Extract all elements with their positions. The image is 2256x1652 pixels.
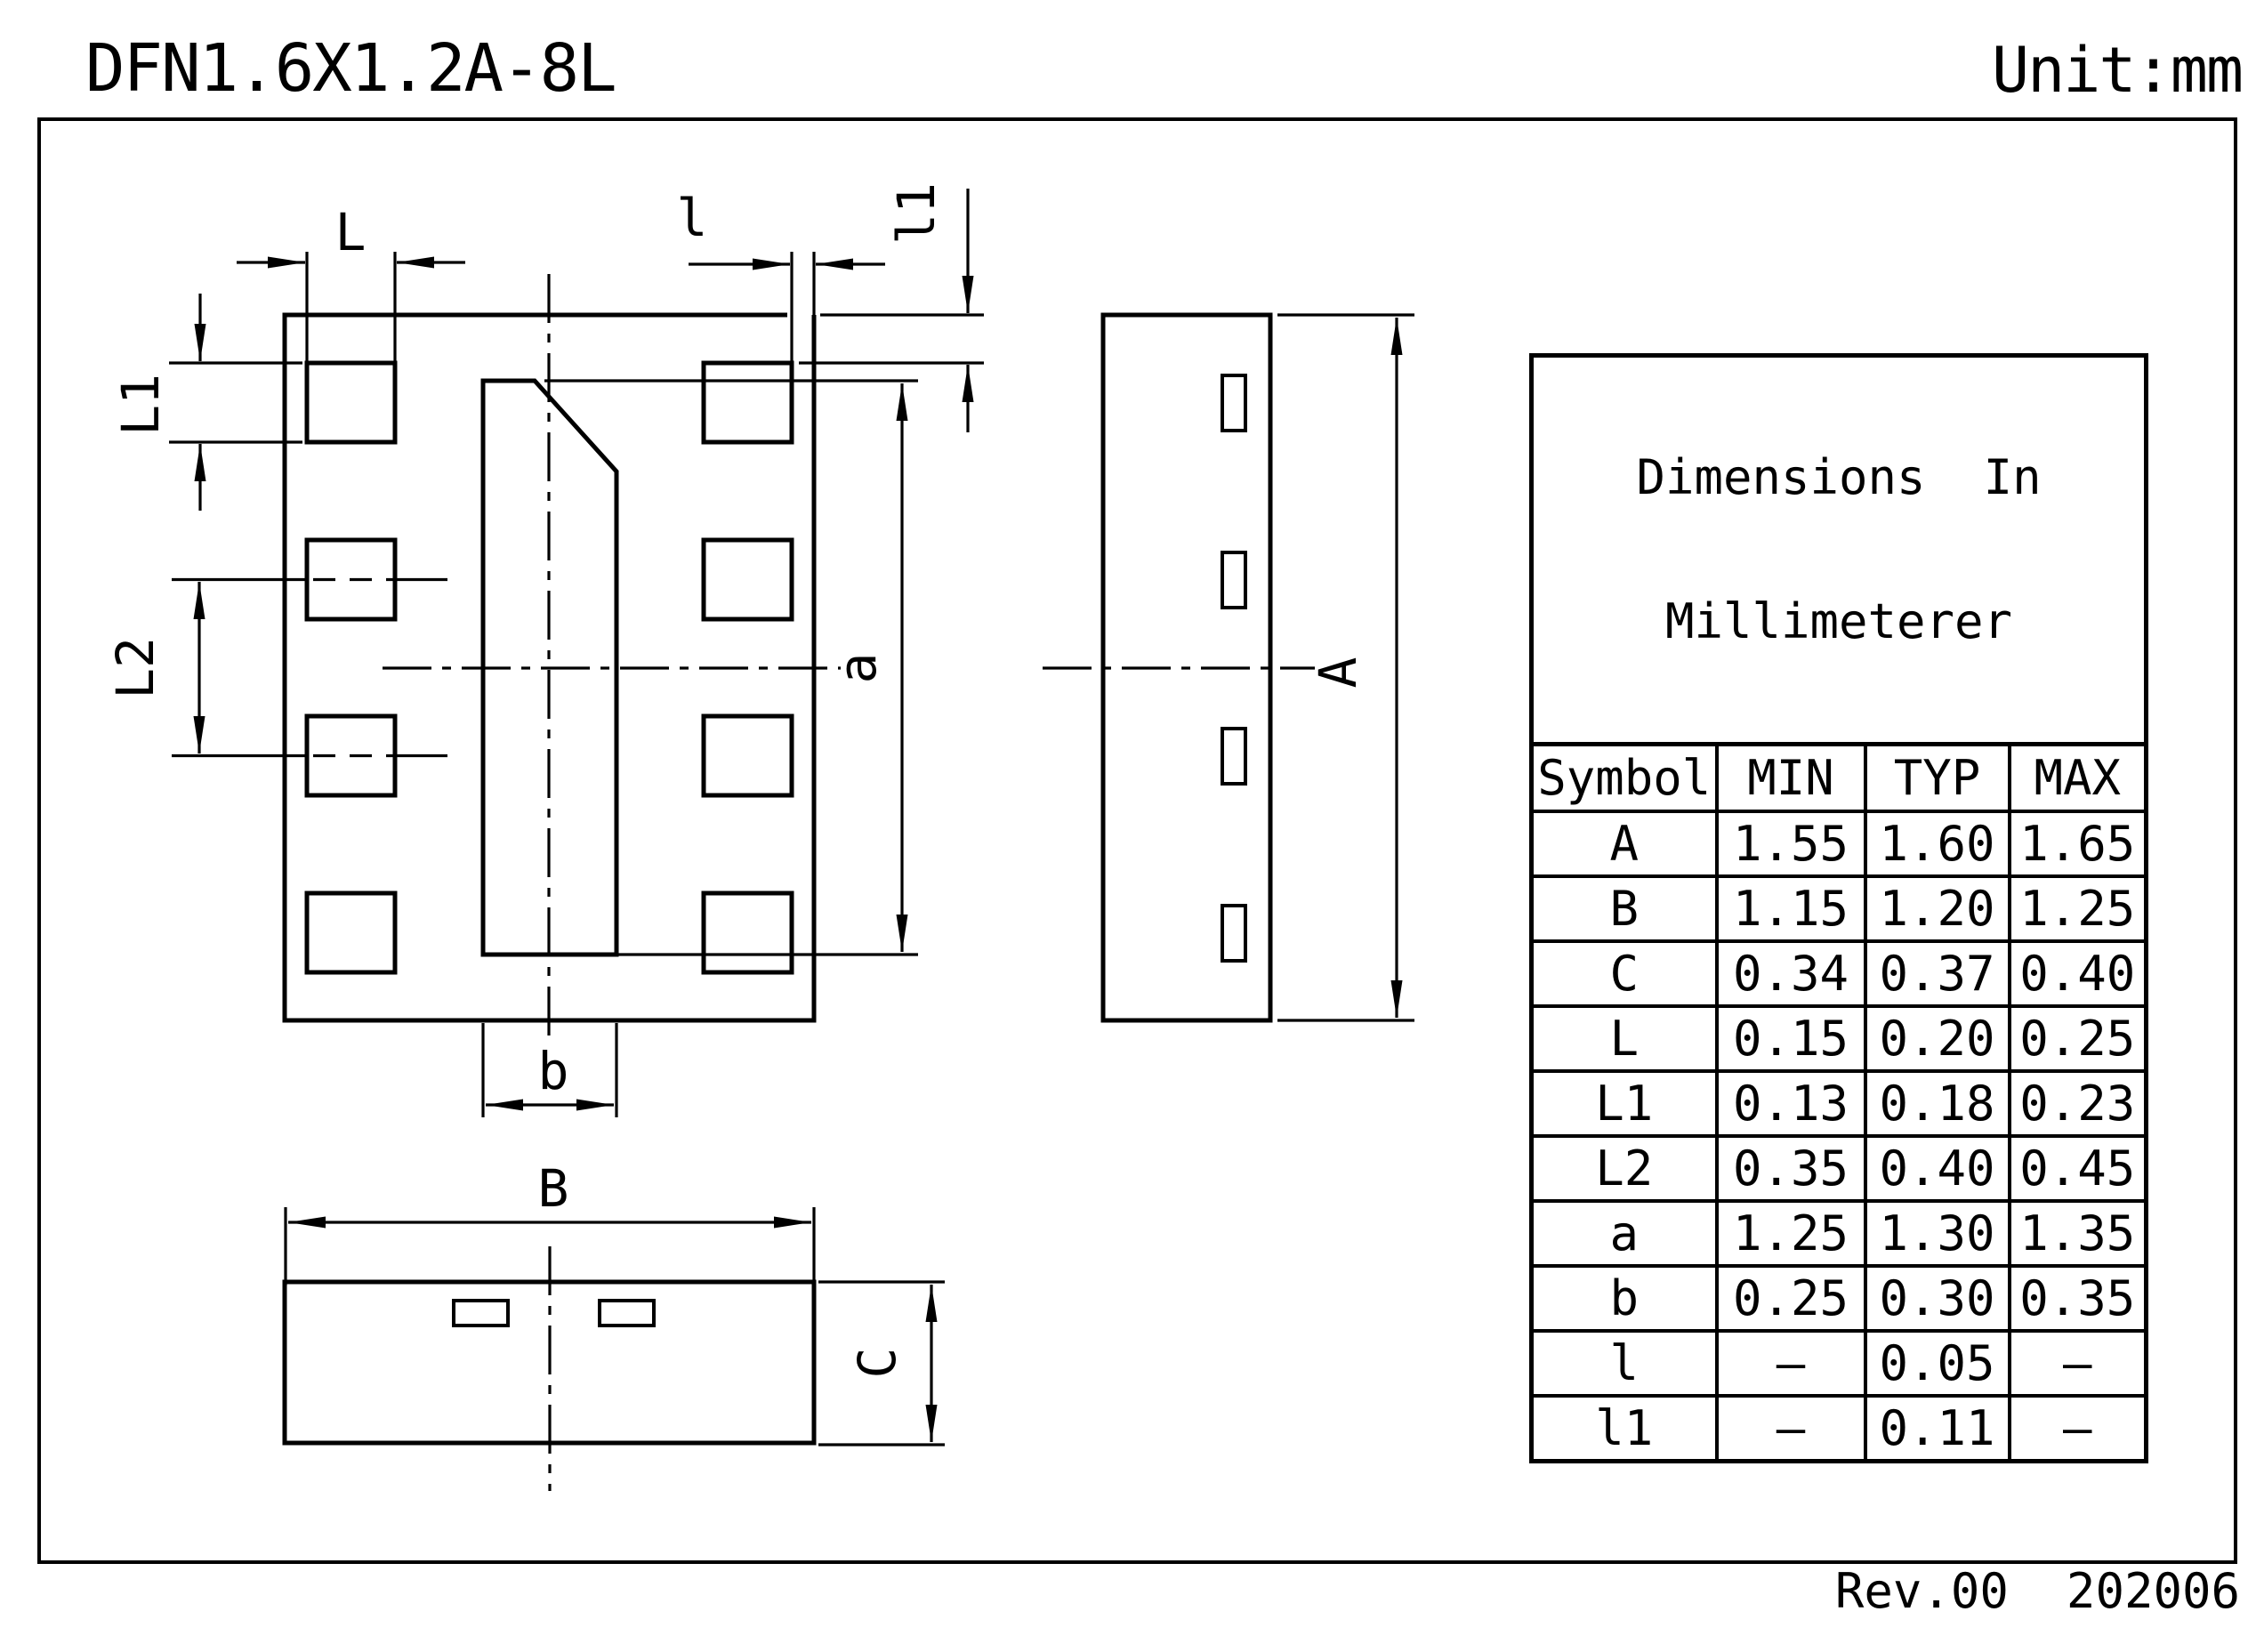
cell-max: – bbox=[2010, 1331, 2147, 1396]
side-slot-2 bbox=[1222, 552, 1245, 608]
cell-typ: 0.37 bbox=[1865, 941, 2010, 1006]
cell-max: 1.25 bbox=[2010, 876, 2147, 941]
pad-right-4 bbox=[704, 893, 792, 972]
cell-symbol: B bbox=[1532, 876, 1717, 941]
cell-max: 0.40 bbox=[2010, 941, 2147, 1006]
table-title-row: Dimensions In Millimeterer bbox=[1532, 356, 2147, 745]
table-title-line2: Millimeterer bbox=[1534, 598, 2144, 646]
table-row: C 0.34 0.37 0.40 bbox=[1532, 941, 2147, 1006]
cell-min: 0.35 bbox=[1717, 1136, 1865, 1201]
top-view bbox=[172, 274, 841, 1039]
cell-typ: 1.60 bbox=[1865, 811, 2010, 876]
col-header-min: MIN bbox=[1717, 745, 1865, 812]
cell-max: 0.25 bbox=[2010, 1006, 2147, 1071]
cell-min: 0.13 bbox=[1717, 1071, 1865, 1136]
table-row: l1 – 0.11 – bbox=[1532, 1396, 2147, 1462]
dimension-l1: l1 bbox=[799, 182, 984, 432]
cell-min: 0.34 bbox=[1717, 941, 1865, 1006]
side-slot-1 bbox=[1222, 375, 1245, 431]
cell-min: 1.15 bbox=[1717, 876, 1865, 941]
cell-max: 0.23 bbox=[2010, 1071, 2147, 1136]
col-header-typ: TYP bbox=[1865, 745, 2010, 812]
label-l1: l1 bbox=[886, 182, 947, 245]
pad-left-4 bbox=[307, 893, 395, 972]
cell-symbol: C bbox=[1532, 941, 1717, 1006]
label-B: B bbox=[538, 1158, 569, 1219]
side-view bbox=[1043, 315, 1315, 1020]
cell-symbol: L1 bbox=[1532, 1071, 1717, 1136]
dimension-b: b bbox=[483, 1023, 616, 1117]
cell-typ: 1.30 bbox=[1865, 1201, 2010, 1266]
side-slot-3 bbox=[1222, 729, 1245, 784]
cell-min: 1.55 bbox=[1717, 811, 1865, 876]
cell-typ: 1.20 bbox=[1865, 876, 2010, 941]
table-row: b 0.25 0.30 0.35 bbox=[1532, 1266, 2147, 1331]
cell-symbol: l bbox=[1532, 1331, 1717, 1396]
label-C: C bbox=[847, 1348, 907, 1379]
col-header-symbol: Symbol bbox=[1532, 745, 1717, 812]
cell-max: 0.45 bbox=[2010, 1136, 2147, 1201]
table-row: l – 0.05 – bbox=[1532, 1331, 2147, 1396]
cell-max: 0.35 bbox=[2010, 1266, 2147, 1331]
cell-typ: 0.30 bbox=[1865, 1266, 2010, 1331]
label-A: A bbox=[1308, 657, 1368, 689]
dimensions-table: Dimensions In Millimeterer Symbol MIN TY… bbox=[1529, 353, 2148, 1463]
cell-symbol: A bbox=[1532, 811, 1717, 876]
col-header-max: MAX bbox=[2010, 745, 2147, 812]
pad-right-2 bbox=[704, 540, 792, 619]
table-header-row: Symbol MIN TYP MAX bbox=[1532, 745, 2147, 812]
label-L1: L1 bbox=[110, 374, 171, 436]
dimension-C: C bbox=[818, 1282, 945, 1445]
label-a: a bbox=[827, 653, 888, 684]
cell-symbol: L bbox=[1532, 1006, 1717, 1071]
cell-min: 0.15 bbox=[1717, 1006, 1865, 1071]
cell-symbol: a bbox=[1532, 1201, 1717, 1266]
label-L2: L2 bbox=[105, 637, 165, 699]
dimension-l: l bbox=[677, 188, 885, 383]
pad-right-3 bbox=[704, 716, 792, 795]
cell-typ: 0.11 bbox=[1865, 1396, 2010, 1462]
dimension-L2: L2 bbox=[105, 582, 199, 753]
table-row: a 1.25 1.30 1.35 bbox=[1532, 1201, 2147, 1266]
cell-min: 0.25 bbox=[1717, 1266, 1865, 1331]
cell-max: – bbox=[2010, 1396, 2147, 1462]
side-slot-4 bbox=[1222, 906, 1245, 961]
cell-max: 1.35 bbox=[2010, 1201, 2147, 1266]
bottom-view bbox=[285, 1246, 814, 1491]
label-b: b bbox=[538, 1041, 569, 1101]
table-row: L1 0.13 0.18 0.23 bbox=[1532, 1071, 2147, 1136]
cell-min: 1.25 bbox=[1717, 1201, 1865, 1266]
cell-min: – bbox=[1717, 1331, 1865, 1396]
table-row: L2 0.35 0.40 0.45 bbox=[1532, 1136, 2147, 1201]
cell-typ: 0.05 bbox=[1865, 1331, 2010, 1396]
bottom-slot-2 bbox=[600, 1301, 654, 1326]
table-title-line1: Dimensions In bbox=[1534, 454, 2144, 502]
bottom-slot-1 bbox=[454, 1301, 508, 1326]
label-L: L bbox=[335, 202, 367, 262]
cell-symbol: L2 bbox=[1532, 1136, 1717, 1201]
table-row: L 0.15 0.20 0.25 bbox=[1532, 1006, 2147, 1071]
cell-min: – bbox=[1717, 1396, 1865, 1462]
table-row: B 1.15 1.20 1.25 bbox=[1532, 876, 2147, 941]
datasheet-page: DFN1.6X1.2A-8L Unit:mm Rev.00 202006 bbox=[0, 0, 2256, 1652]
table-title-cell: Dimensions In Millimeterer bbox=[1532, 356, 2147, 745]
cell-symbol: b bbox=[1532, 1266, 1717, 1331]
pad-left-1 bbox=[307, 363, 395, 442]
label-l: l bbox=[677, 188, 708, 248]
cell-typ: 0.20 bbox=[1865, 1006, 2010, 1071]
cell-symbol: l1 bbox=[1532, 1396, 1717, 1462]
dimension-L1: L1 bbox=[110, 294, 302, 511]
table-row: A 1.55 1.60 1.65 bbox=[1532, 811, 2147, 876]
cell-max: 1.65 bbox=[2010, 811, 2147, 876]
pad-right-1 bbox=[704, 363, 792, 442]
cell-typ: 0.40 bbox=[1865, 1136, 2010, 1201]
cell-typ: 0.18 bbox=[1865, 1071, 2010, 1136]
